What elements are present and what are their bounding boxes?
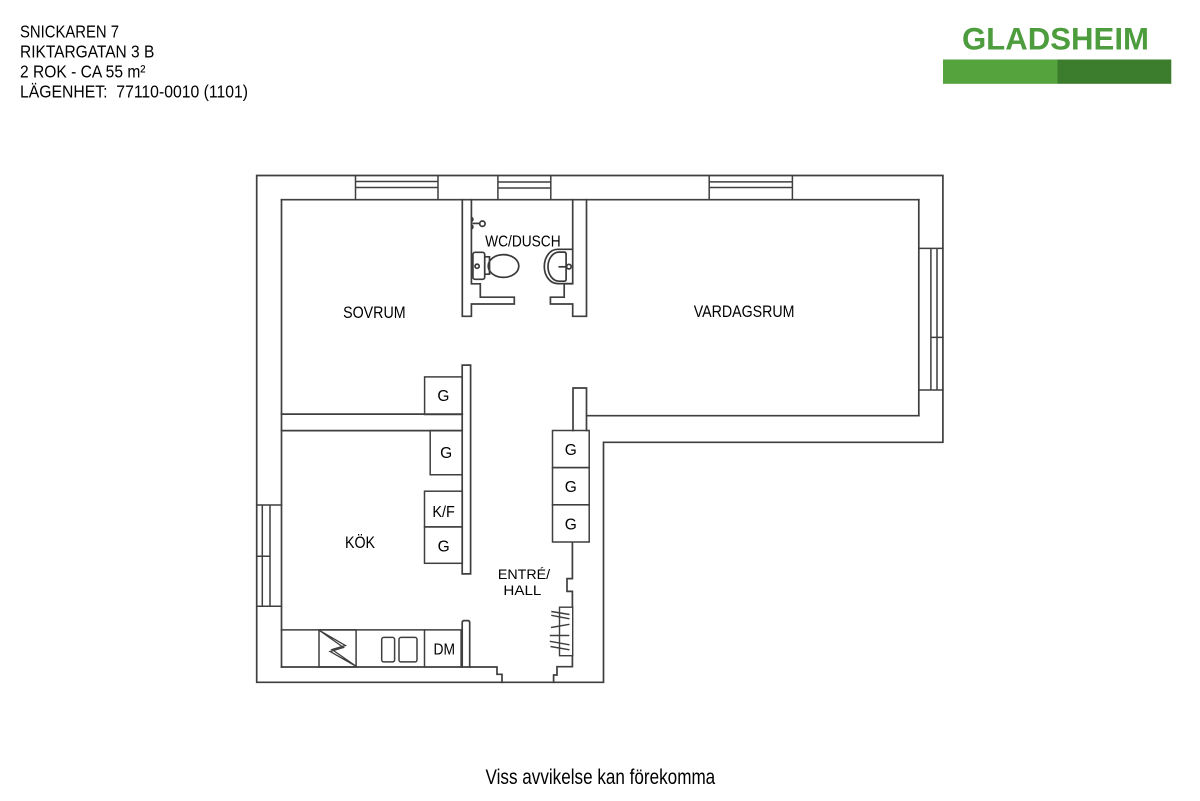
svg-text:DM: DM — [434, 642, 456, 659]
svg-text:HALL: HALL — [503, 582, 541, 598]
svg-text:G: G — [437, 388, 449, 405]
svg-text:GLADSHEIM: GLADSHEIM — [962, 21, 1149, 57]
svg-text:G: G — [565, 442, 577, 459]
svg-text:G: G — [438, 539, 450, 556]
svg-text:ENTRÉ/: ENTRÉ/ — [498, 566, 550, 582]
svg-text:RIKTARGATAN 3 B: RIKTARGATAN 3 B — [20, 42, 154, 62]
svg-text:G: G — [565, 516, 577, 533]
svg-text:LÄGENHET: 77110-0010 (1101): LÄGENHET: 77110-0010 (1101) — [20, 81, 248, 101]
svg-text:VARDAGSRUM: VARDAGSRUM — [694, 303, 795, 321]
svg-text:SNICKAREN 7: SNICKAREN 7 — [20, 22, 119, 42]
svg-text:K/F: K/F — [432, 504, 455, 521]
svg-text:G: G — [440, 445, 452, 462]
svg-text:SOVRUM: SOVRUM — [343, 304, 406, 322]
svg-text:KÖK: KÖK — [345, 534, 375, 552]
svg-text:WC/DUSCH: WC/DUSCH — [485, 233, 561, 250]
svg-text:G: G — [565, 479, 577, 496]
svg-text:2 ROK - CA 55 m²: 2 ROK - CA 55 m² — [20, 62, 146, 82]
svg-text:Viss avvikelse kan förekomma: Viss avvikelse kan förekomma — [486, 766, 716, 789]
